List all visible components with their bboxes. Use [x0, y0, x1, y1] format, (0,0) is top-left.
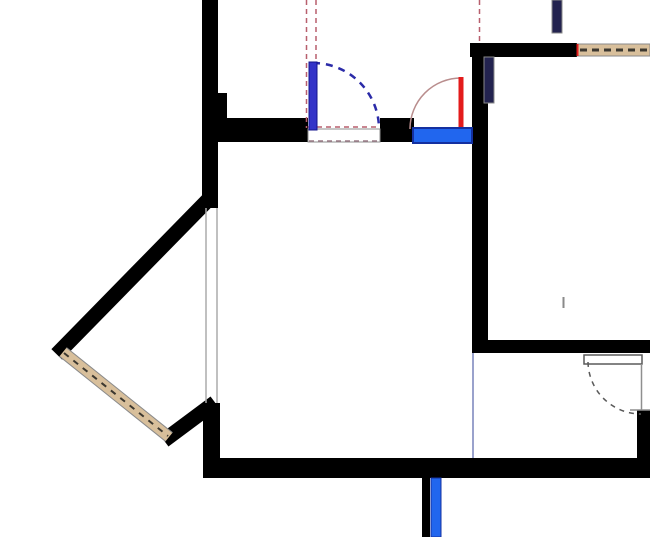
- door-panel-navy-right: [484, 57, 494, 103]
- door-threshold-top: [308, 129, 380, 142]
- wall-topright-horizontal: [470, 43, 577, 57]
- door-blue-leaf: [309, 62, 317, 130]
- door-bottomright-leaf: [584, 355, 642, 364]
- door-panel-navy-top: [552, 0, 562, 33]
- wall-left-notch: [218, 93, 227, 118]
- wall-left-upper: [202, 0, 218, 208]
- floor-plan-view: [0, 0, 650, 537]
- window-blue-bottom-stub: [431, 478, 441, 537]
- door-blue-swing-arc: [313, 63, 379, 129]
- wall-bottomright-stub: [637, 410, 650, 458]
- window-tan-topright: [577, 44, 650, 56]
- bay-window-edge-outer: [60, 356, 166, 441]
- door-red-leaf: [459, 77, 464, 129]
- wall-bottom-stub-below: [422, 478, 430, 537]
- wall-top-main-mid: [380, 118, 414, 142]
- wall-bay-upper-diagonal: [62, 202, 206, 349]
- bay-window-fill: [63, 352, 169, 437]
- door-bottomright-swing-arc: [588, 362, 641, 414]
- window-blue-top: [413, 128, 472, 143]
- wall-top-main-left: [202, 118, 308, 142]
- bay-window-edge-inner: [67, 348, 173, 433]
- door-red-swing-arc: [410, 78, 461, 129]
- wall-midright-horizontal: [472, 340, 650, 353]
- wall-bottom: [203, 458, 650, 478]
- floor-plan-canvas: [0, 0, 650, 537]
